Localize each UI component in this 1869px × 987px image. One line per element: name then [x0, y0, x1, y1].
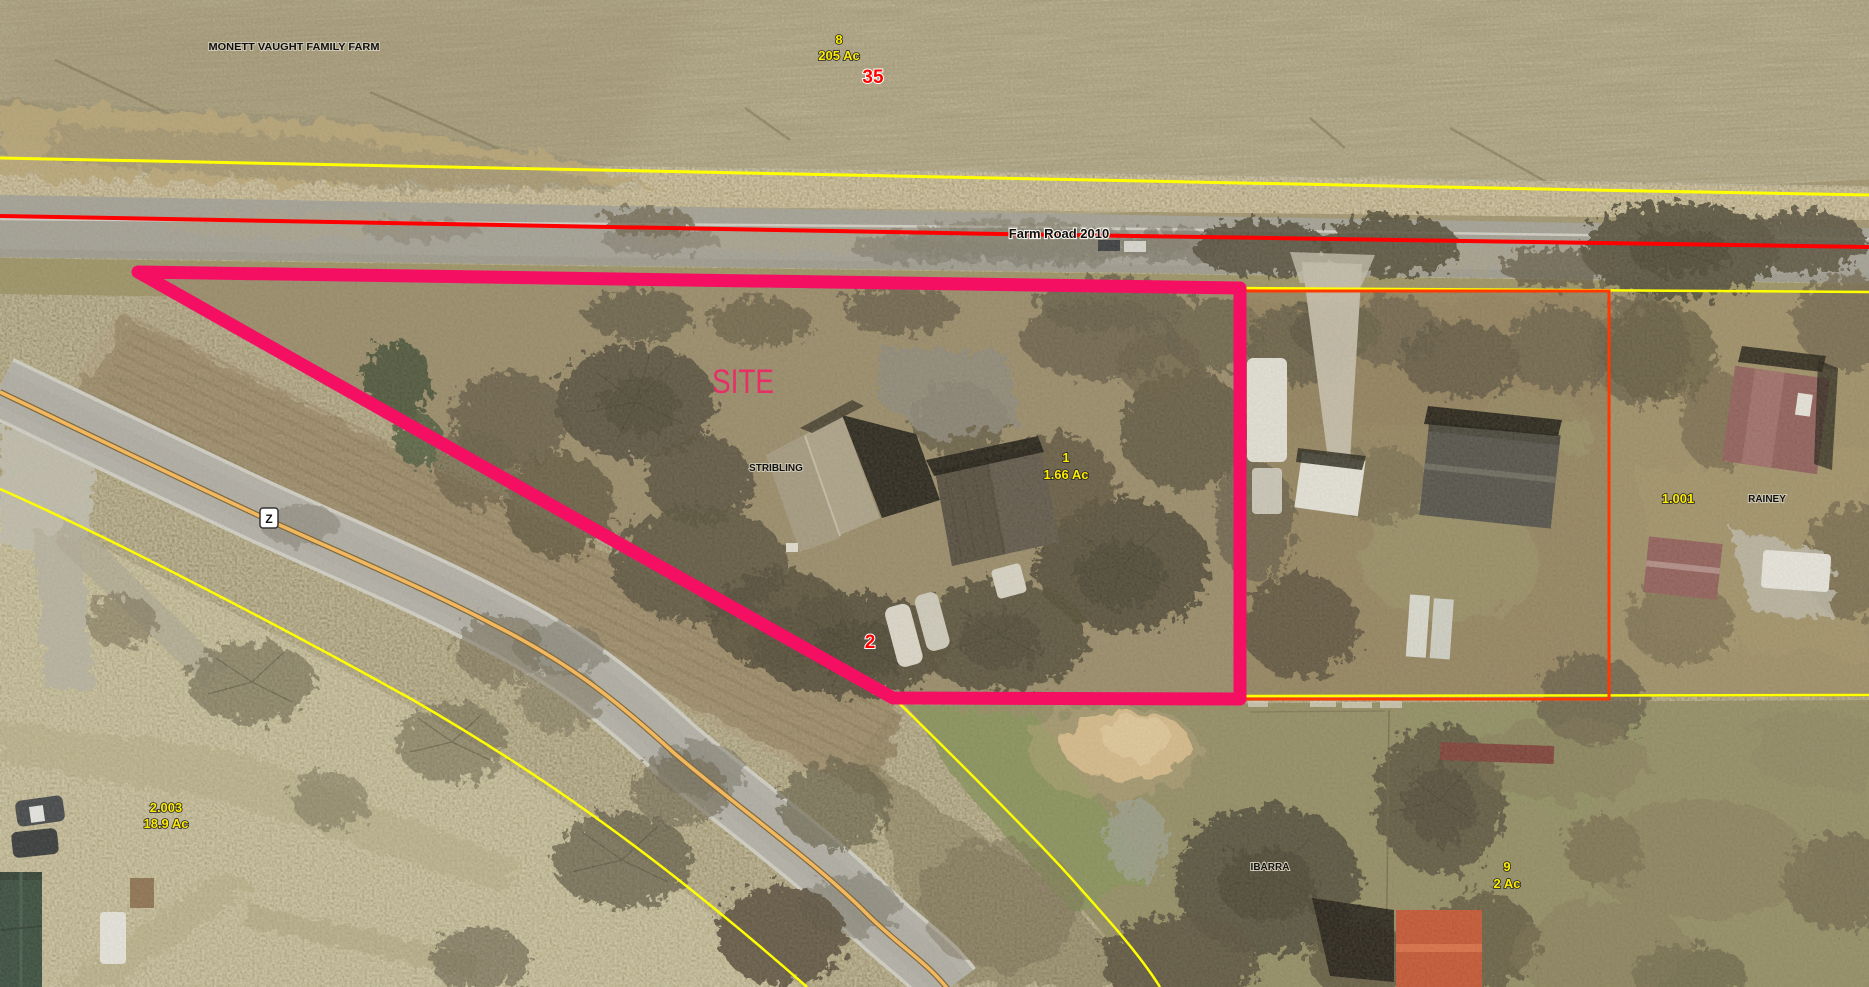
svg-text:9: 9 — [1503, 859, 1510, 874]
svg-text:1.66 Ac: 1.66 Ac — [1043, 467, 1088, 482]
svg-text:1: 1 — [1062, 450, 1069, 465]
svg-text:205 Ac: 205 Ac — [818, 48, 859, 63]
svg-text:35: 35 — [862, 67, 884, 88]
svg-text:STRIBLING: STRIBLING — [749, 463, 803, 474]
svg-text:18.9 Ac: 18.9 Ac — [143, 816, 188, 831]
svg-text:IBARRA: IBARRA — [1251, 862, 1290, 873]
svg-text:MONETT VAUGHT FAMILY FARM: MONETT VAUGHT FAMILY FARM — [209, 41, 380, 53]
svg-text:2: 2 — [865, 632, 876, 653]
svg-text:Farm Road 2010: Farm Road 2010 — [1009, 226, 1109, 241]
svg-text:SITE: SITE — [712, 363, 774, 401]
svg-text:RAINEY: RAINEY — [1748, 494, 1786, 505]
svg-text:8: 8 — [835, 32, 842, 47]
svg-text:2.003: 2.003 — [150, 800, 183, 815]
svg-text:Z: Z — [265, 512, 272, 526]
svg-text:1.001: 1.001 — [1662, 491, 1695, 506]
svg-text:2 Ac: 2 Ac — [1494, 876, 1521, 891]
